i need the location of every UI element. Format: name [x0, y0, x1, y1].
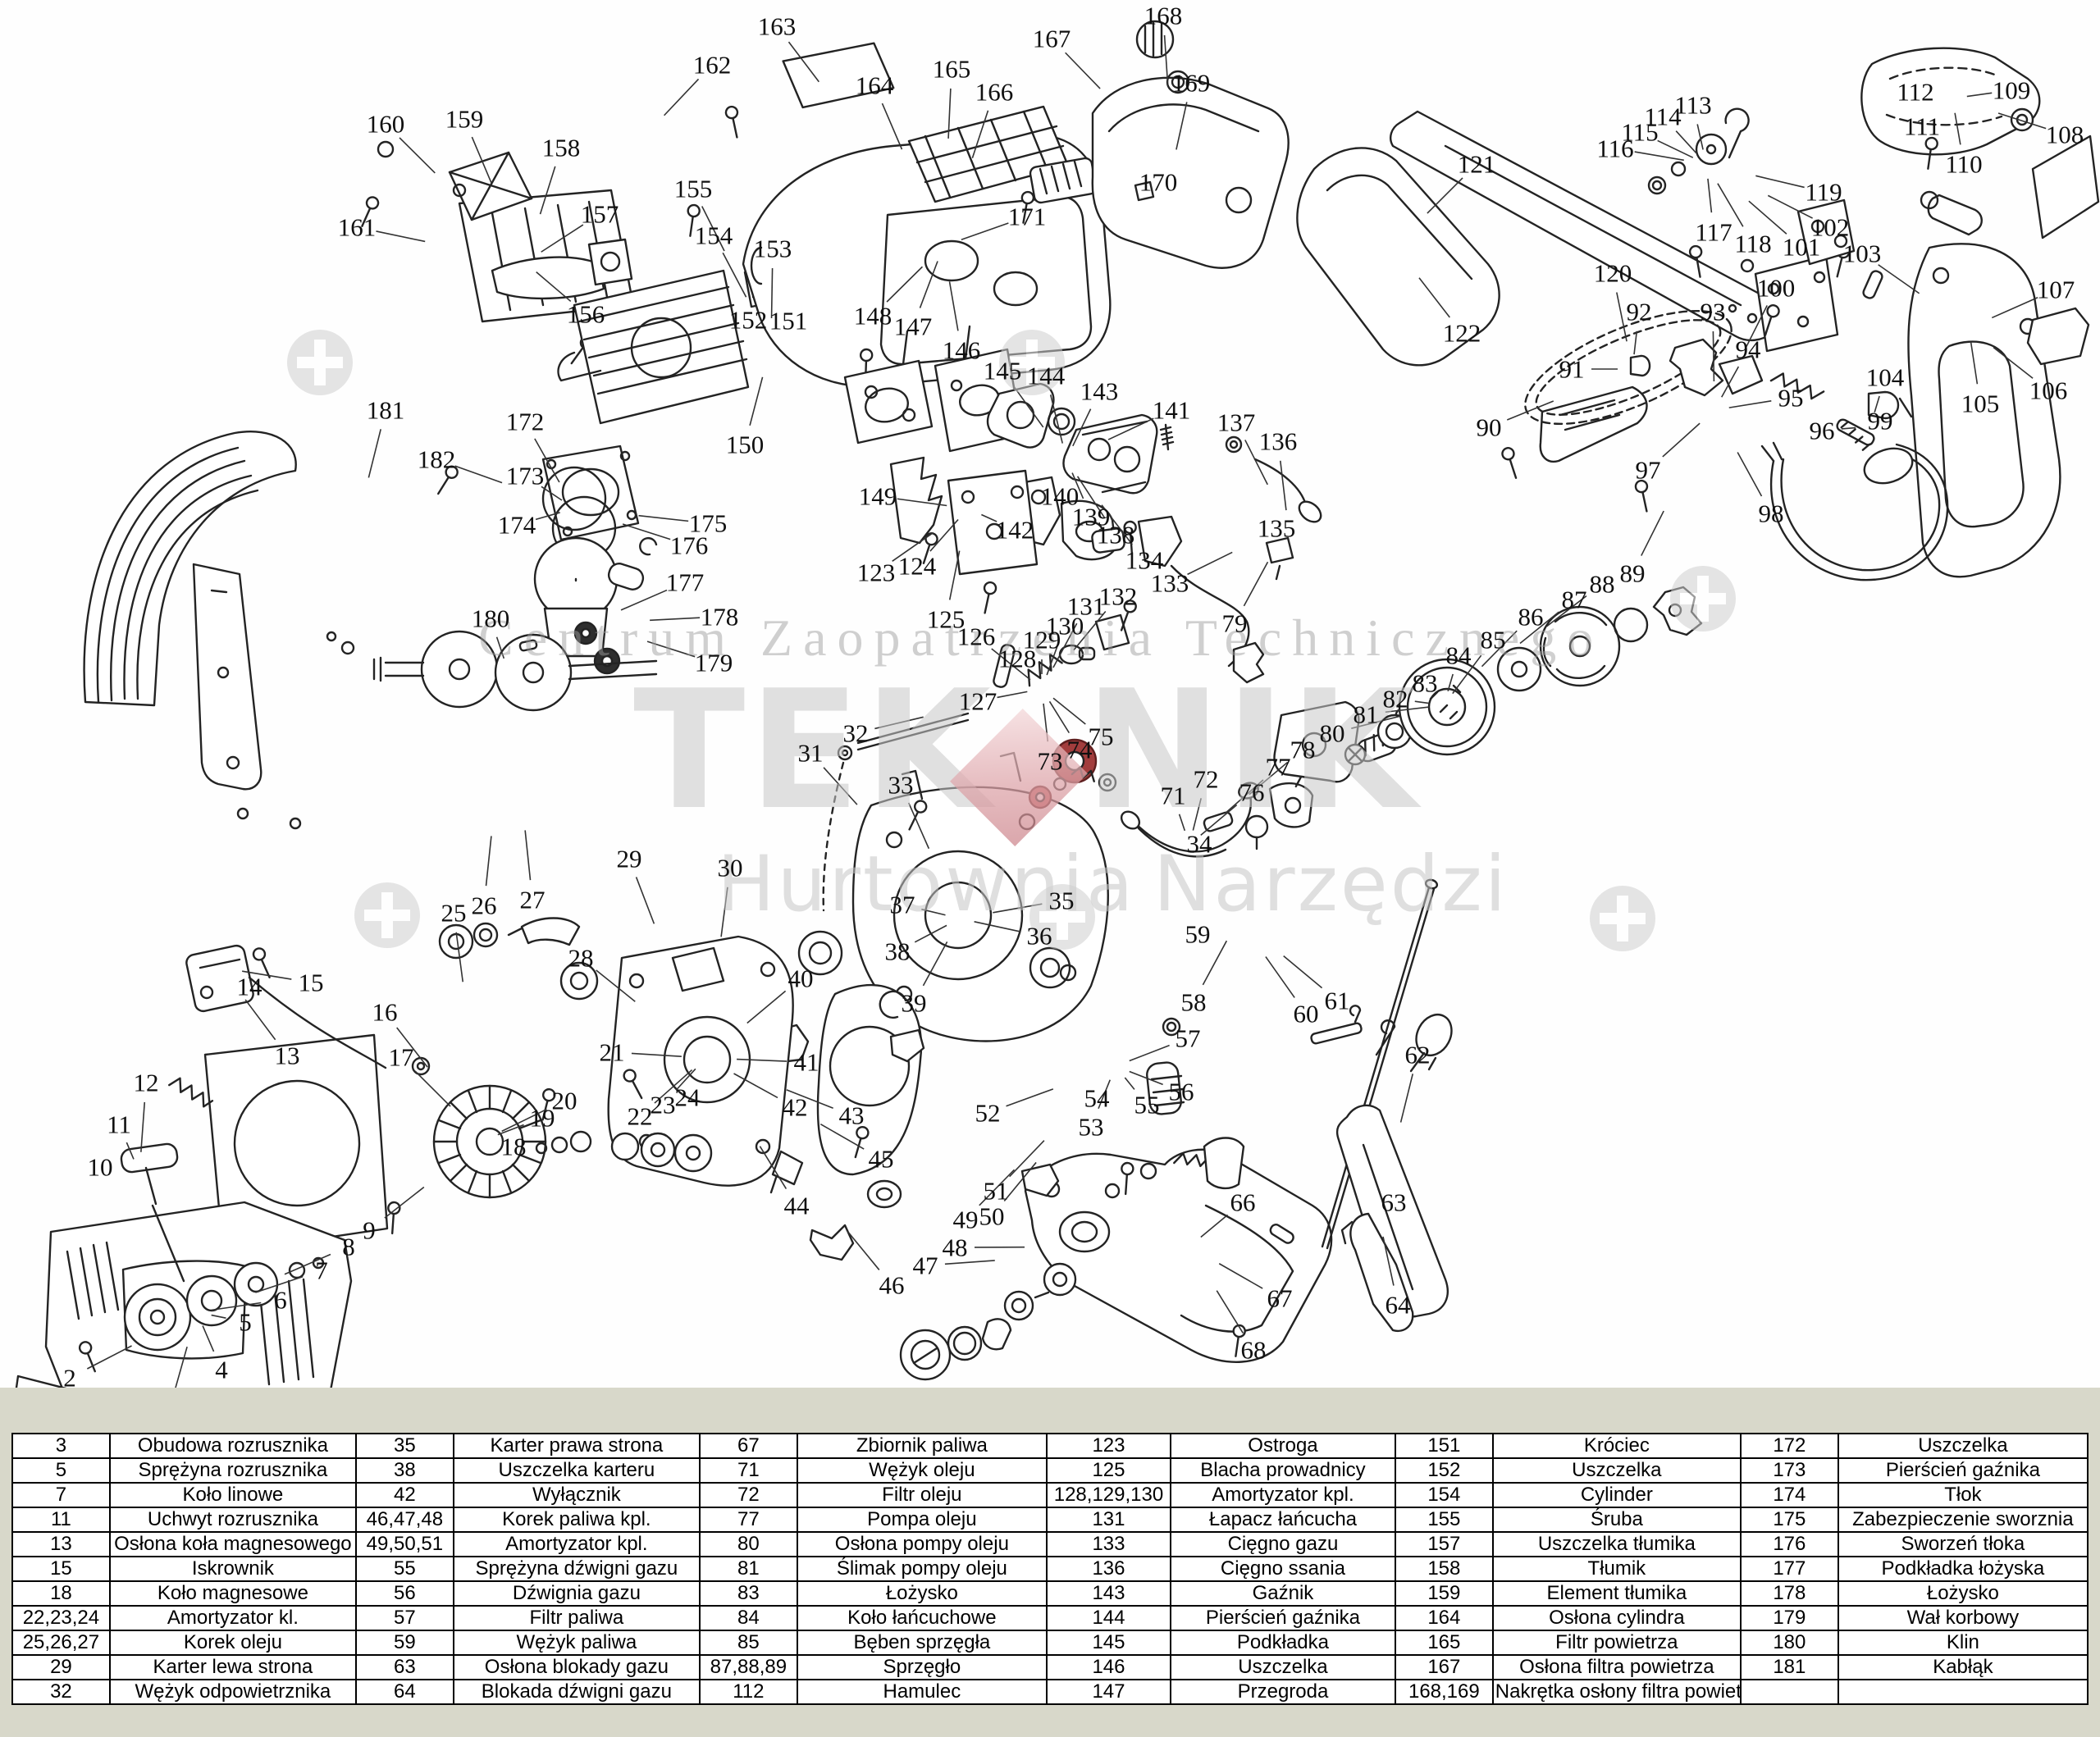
part-label-17: 17 [389, 1045, 414, 1070]
part-name-cell: Obudowa rozrusznika [110, 1434, 356, 1458]
part-label-100: 100 [1757, 276, 1796, 301]
part-label-34: 34 [1187, 832, 1212, 857]
part-label-107: 107 [2037, 277, 2075, 303]
part-label-80: 80 [1320, 721, 1345, 746]
part-number-cell: 25,26,27 [12, 1630, 110, 1655]
part-label-15: 15 [299, 970, 324, 996]
part-label-126: 126 [957, 624, 996, 650]
part-name-cell: Filtr paliwa [454, 1606, 700, 1630]
part-label-157: 157 [581, 202, 619, 227]
part-label-120: 120 [1594, 261, 1632, 286]
part-label-21: 21 [600, 1040, 625, 1065]
part-label-8: 8 [342, 1234, 355, 1260]
part-name-cell: Filtr oleju [797, 1483, 1047, 1507]
part-label-143: 143 [1080, 379, 1119, 404]
part-label-26: 26 [472, 893, 497, 919]
part-number-cell: 83 [700, 1581, 797, 1606]
part-label-169: 169 [1172, 71, 1211, 96]
part-number-cell: 55 [356, 1557, 454, 1581]
part-number-cell: 59 [356, 1630, 454, 1655]
part-number-cell: 133 [1047, 1532, 1171, 1557]
part-number-cell: 77 [700, 1507, 797, 1532]
part-label-48: 48 [943, 1235, 968, 1261]
part-number-cell: 64 [356, 1680, 454, 1704]
part-name-cell: Pierścień gaźnika [1171, 1606, 1395, 1630]
part-label-102: 102 [1811, 215, 1850, 240]
part-label-94: 94 [1736, 337, 1761, 362]
part-label-37: 37 [890, 892, 915, 918]
part-label-147: 147 [894, 314, 933, 340]
part-label-181: 181 [367, 398, 405, 423]
part-label-85: 85 [1481, 627, 1506, 653]
registration-marks-layer [0, 0, 2100, 1388]
part-name-cell: Gaźnik [1171, 1581, 1395, 1606]
page: { "page": { "background_color": "#d8d8ca… [0, 0, 2100, 1737]
part-label-137: 137 [1217, 410, 1256, 435]
part-label-153: 153 [754, 236, 792, 262]
part-number-cell: 157 [1395, 1532, 1493, 1557]
part-name-cell: Karter lewa strona [110, 1655, 356, 1680]
part-label-5: 5 [239, 1310, 252, 1335]
part-number-cell: 123 [1047, 1434, 1171, 1458]
part-label-2: 2 [63, 1365, 76, 1388]
part-name-cell: Ślimak pompy oleju [797, 1557, 1047, 1581]
part-label-172: 172 [506, 409, 545, 435]
part-number-cell: 144 [1047, 1606, 1171, 1630]
part-name-cell: Tłok [1838, 1483, 2088, 1507]
part-label-16: 16 [372, 1000, 398, 1025]
part-label-29: 29 [617, 846, 642, 872]
part-number-cell: 145 [1047, 1630, 1171, 1655]
part-label-41: 41 [794, 1050, 819, 1075]
part-name-cell [1838, 1680, 2088, 1704]
part-label-127: 127 [959, 689, 997, 714]
part-number-cell: 18 [12, 1581, 110, 1606]
part-label-150: 150 [726, 432, 765, 458]
part-label-4: 4 [215, 1357, 228, 1383]
part-label-27: 27 [520, 887, 546, 913]
registration-mark-icon [1670, 566, 1736, 631]
table-row: 15Iskrownik55Sprężyna dźwigni gazu81Ślim… [12, 1557, 2088, 1581]
part-name-cell: Cięgno ssania [1171, 1557, 1395, 1581]
part-label-117: 117 [1695, 220, 1732, 245]
table-row: 18Koło magnesowe56Dźwignia gazu83Łożysko… [12, 1581, 2088, 1606]
part-number-cell: 84 [700, 1606, 797, 1630]
part-label-61: 61 [1325, 988, 1350, 1014]
part-label-43: 43 [839, 1103, 865, 1128]
part-number-cell: 57 [356, 1606, 454, 1630]
part-label-178: 178 [701, 604, 739, 630]
part-name-cell: Element tłumika [1493, 1581, 1741, 1606]
part-name-cell: Podkładka łożyska [1838, 1557, 2088, 1581]
part-name-cell: Łapacz łańcucha [1171, 1507, 1395, 1532]
part-number-cell: 112 [700, 1680, 797, 1704]
part-label-166: 166 [975, 80, 1014, 105]
part-label-38: 38 [885, 939, 911, 964]
part-label-13: 13 [275, 1043, 300, 1069]
part-label-35: 35 [1049, 888, 1075, 914]
part-name-cell: Amortyzator kpl. [1171, 1483, 1395, 1507]
part-label-86: 86 [1518, 604, 1544, 630]
part-name-cell: Zbiornik paliwa [797, 1434, 1047, 1458]
part-number-cell: 13 [12, 1532, 110, 1557]
part-label-46: 46 [879, 1273, 905, 1298]
part-name-cell: Bęben sprzęgła [797, 1630, 1047, 1655]
part-name-cell: Blokada dźwigni gazu [454, 1680, 700, 1704]
part-label-30: 30 [718, 855, 743, 881]
part-name-cell: Wężyk oleju [797, 1458, 1047, 1483]
part-name-cell: Uszczelka [1838, 1434, 2088, 1458]
part-label-52: 52 [975, 1101, 1001, 1126]
part-label-18: 18 [501, 1134, 527, 1160]
part-label-164: 164 [856, 73, 894, 98]
table-row: 7Koło linowe42Wyłącznik72Filtr oleju128,… [12, 1483, 2088, 1507]
part-label-39: 39 [902, 991, 927, 1016]
part-label-163: 163 [758, 14, 797, 39]
part-label-92: 92 [1627, 299, 1652, 325]
part-name-cell: Klin [1838, 1630, 2088, 1655]
part-number-cell: 155 [1395, 1507, 1493, 1532]
part-label-75: 75 [1089, 724, 1114, 750]
part-label-123: 123 [857, 560, 896, 586]
part-label-33: 33 [888, 773, 914, 798]
part-number-cell: 179 [1741, 1606, 1838, 1630]
part-name-cell: Korek paliwa kpl. [454, 1507, 700, 1532]
part-label-118: 118 [1734, 231, 1771, 257]
part-number-cell: 125 [1047, 1458, 1171, 1483]
part-name-cell: Osłona cylindra [1493, 1606, 1741, 1630]
part-name-cell: Korek oleju [110, 1630, 356, 1655]
part-label-148: 148 [854, 303, 892, 329]
part-label-58: 58 [1181, 990, 1207, 1015]
part-number-cell: 35 [356, 1434, 454, 1458]
part-label-84: 84 [1446, 643, 1472, 668]
part-number-cell: 81 [700, 1557, 797, 1581]
part-number-cell: 46,47,48 [356, 1507, 454, 1532]
part-label-23: 23 [651, 1092, 676, 1118]
part-number-cell: 181 [1741, 1655, 1838, 1680]
part-number-cell: 158 [1395, 1557, 1493, 1581]
part-label-168: 168 [1144, 3, 1183, 29]
part-label-144: 144 [1027, 363, 1066, 389]
part-label-64: 64 [1386, 1292, 1411, 1318]
part-number-cell: 143 [1047, 1581, 1171, 1606]
part-label-53: 53 [1079, 1115, 1104, 1140]
part-label-78: 78 [1290, 737, 1316, 763]
part-number-cell: 146 [1047, 1655, 1171, 1680]
part-label-44: 44 [784, 1193, 810, 1219]
part-label-22: 22 [628, 1104, 653, 1129]
part-number-cell: 147 [1047, 1680, 1171, 1704]
part-label-179: 179 [695, 650, 733, 676]
part-label-103: 103 [1843, 241, 1882, 267]
part-name-cell: Osłona pompy oleju [797, 1532, 1047, 1557]
part-name-cell: Amortyzator kpl. [454, 1532, 700, 1557]
part-name-cell: Filtr powietrza [1493, 1630, 1741, 1655]
part-label-87: 87 [1562, 587, 1587, 613]
part-name-cell: Karter prawa strona [454, 1434, 700, 1458]
part-label-12: 12 [134, 1070, 159, 1096]
part-label-63: 63 [1381, 1190, 1407, 1215]
part-name-cell: Łożysko [797, 1581, 1047, 1606]
part-label-90: 90 [1477, 415, 1502, 440]
part-number-cell: 80 [700, 1532, 797, 1557]
part-name-cell: Uszczelka tłumika [1493, 1532, 1741, 1557]
part-label-50: 50 [979, 1204, 1005, 1229]
part-label-45: 45 [869, 1147, 894, 1172]
part-name-cell: Cięgno gazu [1171, 1532, 1395, 1557]
part-number-cell: 180 [1741, 1630, 1838, 1655]
part-label-59: 59 [1185, 922, 1211, 947]
registration-mark-icon [354, 882, 420, 948]
part-label-68: 68 [1241, 1338, 1267, 1363]
part-number-cell: 63 [356, 1655, 454, 1680]
part-label-76: 76 [1239, 780, 1265, 805]
part-name-cell: Koło łańcuchowe [797, 1606, 1047, 1630]
part-label-56: 56 [1169, 1079, 1194, 1105]
part-number-cell: 85 [700, 1630, 797, 1655]
part-label-97: 97 [1636, 458, 1661, 483]
part-name-cell: Kabłąk [1838, 1655, 2088, 1680]
part-name-cell: Uszczelka [1171, 1655, 1395, 1680]
part-label-40: 40 [788, 966, 814, 992]
part-label-182: 182 [418, 447, 456, 472]
part-number-cell: 32 [12, 1680, 110, 1704]
part-number-cell: 72 [700, 1483, 797, 1507]
part-name-cell: Cylinder [1493, 1483, 1741, 1507]
part-number-cell: 42 [356, 1483, 454, 1507]
registration-mark-icon [287, 330, 353, 395]
part-number-cell: 164 [1395, 1606, 1493, 1630]
part-label-152: 152 [729, 308, 768, 333]
part-label-124: 124 [898, 554, 937, 579]
parts-list-table: 3Obudowa rozrusznika35Karter prawa stron… [11, 1433, 2089, 1705]
part-label-173: 173 [506, 463, 545, 489]
part-number-cell: 165 [1395, 1630, 1493, 1655]
part-label-167: 167 [1033, 26, 1071, 52]
part-number-cell: 159 [1395, 1581, 1493, 1606]
part-name-cell: Wężyk paliwa [454, 1630, 700, 1655]
part-label-132: 132 [1099, 584, 1138, 609]
part-label-110: 110 [1945, 152, 1982, 177]
part-label-24: 24 [675, 1085, 701, 1110]
part-label-170: 170 [1139, 170, 1178, 195]
part-name-cell: Łożysko [1838, 1581, 2088, 1606]
part-label-14: 14 [237, 974, 262, 1000]
part-label-71: 71 [1161, 783, 1186, 809]
part-label-174: 174 [498, 513, 536, 538]
part-label-81: 81 [1354, 702, 1379, 727]
table-row: 5Sprężyna rozrusznika38Uszczelka karteru… [12, 1458, 2088, 1483]
exploded-diagram-canvas: Centrum Zaopatrzenia Technicznego TEK NI… [0, 0, 2100, 1388]
part-number-cell: 152 [1395, 1458, 1493, 1483]
part-name-cell: Blacha prowadnicy [1171, 1458, 1395, 1483]
part-number-cell: 176 [1741, 1532, 1838, 1557]
part-number-cell: 3 [12, 1434, 110, 1458]
part-name-cell: Dźwignia gazu [454, 1581, 700, 1606]
part-number-cell: 56 [356, 1581, 454, 1606]
part-label-47: 47 [913, 1253, 938, 1279]
part-label-60: 60 [1294, 1001, 1319, 1027]
table-row: 29Karter lewa strona63Osłona blokady gaz… [12, 1655, 2088, 1680]
part-label-156: 156 [567, 302, 605, 327]
part-number-cell: 71 [700, 1458, 797, 1483]
part-name-cell: Sworzeń tłoka [1838, 1532, 2088, 1557]
part-label-88: 88 [1590, 572, 1615, 597]
part-name-cell: Sprężyna rozrusznika [110, 1458, 356, 1483]
part-name-cell: Tłumik [1493, 1557, 1741, 1581]
table-row: 11Uchwyt rozrusznika46,47,48Korek paliwa… [12, 1507, 2088, 1532]
part-number-cell: 7 [12, 1483, 110, 1507]
part-label-119: 119 [1805, 180, 1842, 205]
part-label-89: 89 [1620, 561, 1646, 586]
part-label-161: 161 [338, 215, 377, 240]
part-label-145: 145 [984, 358, 1022, 384]
part-label-6: 6 [274, 1288, 287, 1313]
part-label-165: 165 [933, 57, 971, 82]
part-label-11: 11 [107, 1112, 131, 1137]
part-name-cell: Sprężyna dźwigni gazu [454, 1557, 700, 1581]
part-label-111: 111 [1904, 114, 1940, 139]
part-number-cell: 175 [1741, 1507, 1838, 1532]
part-label-95: 95 [1778, 385, 1804, 411]
part-name-cell: Uszczelka [1493, 1458, 1741, 1483]
part-label-7: 7 [315, 1258, 328, 1283]
part-label-104: 104 [1866, 365, 1905, 390]
part-label-79: 79 [1222, 611, 1248, 636]
part-label-9: 9 [363, 1218, 376, 1243]
part-label-54: 54 [1084, 1086, 1110, 1111]
part-number-cell: 178 [1741, 1581, 1838, 1606]
part-number-cell: 151 [1395, 1434, 1493, 1458]
part-label-20: 20 [552, 1088, 577, 1114]
part-label-31: 31 [798, 741, 824, 766]
part-number-cell: 87,88,89 [700, 1655, 797, 1680]
table-row: 3Obudowa rozrusznika35Karter prawa stron… [12, 1434, 2088, 1458]
part-label-135: 135 [1258, 516, 1296, 541]
part-name-cell: Sprzęgło [797, 1655, 1047, 1680]
part-number-cell: 38 [356, 1458, 454, 1483]
part-label-171: 171 [1008, 204, 1047, 230]
part-name-cell: Ostroga [1171, 1434, 1395, 1458]
part-label-42: 42 [783, 1095, 808, 1120]
part-label-180: 180 [472, 606, 510, 631]
part-label-49: 49 [953, 1207, 979, 1233]
part-number-cell: 154 [1395, 1483, 1493, 1507]
parts-list-body: 3Obudowa rozrusznika35Karter prawa stron… [12, 1434, 2088, 1704]
part-name-cell: Podkładka [1171, 1630, 1395, 1655]
part-label-72: 72 [1194, 767, 1219, 792]
part-name-cell: Osłona blokady gazu [454, 1655, 700, 1680]
part-label-116: 116 [1596, 136, 1633, 162]
part-label-93: 93 [1701, 299, 1726, 325]
part-label-66: 66 [1230, 1190, 1256, 1215]
part-label-51: 51 [984, 1179, 1009, 1204]
part-label-28: 28 [568, 946, 594, 971]
part-label-134: 134 [1125, 548, 1164, 573]
part-label-141: 141 [1153, 398, 1191, 423]
part-label-77: 77 [1266, 755, 1291, 780]
part-number-cell: 168,169 [1395, 1680, 1493, 1704]
registration-mark-icon [1590, 886, 1655, 951]
part-name-cell: Hamulec [797, 1680, 1047, 1704]
part-number-cell: 167 [1395, 1655, 1493, 1680]
table-row: 25,26,27Korek oleju59Wężyk paliwa85Bęben… [12, 1630, 2088, 1655]
part-number-cell: 29 [12, 1655, 110, 1680]
part-label-73: 73 [1038, 749, 1063, 774]
part-label-57: 57 [1176, 1026, 1201, 1051]
part-number-cell: 67 [700, 1434, 797, 1458]
part-label-25: 25 [441, 900, 467, 926]
part-label-105: 105 [1961, 391, 2000, 417]
part-number-cell: 136 [1047, 1557, 1171, 1581]
part-name-cell: Wyłącznik [454, 1483, 700, 1507]
table-row: 13Osłona koła magnesowego49,50,51Amortyz… [12, 1532, 2088, 1557]
part-label-98: 98 [1759, 501, 1784, 527]
part-label-121: 121 [1458, 152, 1496, 177]
part-number-cell: 177 [1741, 1557, 1838, 1581]
part-label-160: 160 [367, 112, 405, 137]
part-name-cell: Koło magnesowe [110, 1581, 356, 1606]
part-label-91: 91 [1559, 357, 1585, 382]
part-label-159: 159 [445, 107, 484, 132]
part-label-140: 140 [1041, 484, 1080, 509]
part-label-155: 155 [674, 176, 713, 202]
part-name-cell: Uchwyt rozrusznika [110, 1507, 356, 1532]
part-number-cell: 131 [1047, 1507, 1171, 1532]
part-name-cell: Amortyzator kl. [110, 1606, 356, 1630]
part-label-82: 82 [1383, 686, 1408, 712]
part-number-cell: 172 [1741, 1434, 1838, 1458]
part-label-36: 36 [1027, 923, 1052, 949]
part-name-cell: Wał korbowy [1838, 1606, 2088, 1630]
part-number-cell: 128,129,130 [1047, 1483, 1171, 1507]
part-number-cell: 15 [12, 1557, 110, 1581]
part-name-cell: Uszczelka karteru [454, 1458, 700, 1483]
part-label-83: 83 [1413, 671, 1438, 696]
part-label-176: 176 [670, 533, 709, 558]
part-label-151: 151 [769, 308, 808, 334]
part-name-cell: Osłona koła magnesowego [110, 1532, 356, 1557]
part-label-96: 96 [1810, 418, 1835, 444]
table-row: 32Wężyk odpowietrznika64Blokada dźwigni … [12, 1680, 2088, 1704]
part-name-cell: Śruba [1493, 1507, 1741, 1532]
part-label-146: 146 [943, 338, 981, 363]
part-number-cell: 22,23,24 [12, 1606, 110, 1630]
part-label-10: 10 [88, 1155, 113, 1180]
part-label-112: 112 [1897, 80, 1933, 105]
part-name-cell: Zabezpieczenie sworznia [1838, 1507, 2088, 1532]
part-label-177: 177 [666, 570, 705, 595]
part-name-cell: Koło linowe [110, 1483, 356, 1507]
part-number-cell: 174 [1741, 1483, 1838, 1507]
part-label-55: 55 [1134, 1092, 1160, 1118]
part-number-cell: 173 [1741, 1458, 1838, 1483]
part-label-149: 149 [859, 484, 897, 509]
part-number-cell [1741, 1680, 1838, 1704]
part-number-cell: 11 [12, 1507, 110, 1532]
part-label-122: 122 [1443, 321, 1481, 346]
part-name-cell: Przegroda [1171, 1680, 1395, 1704]
part-label-32: 32 [843, 721, 869, 746]
part-number-cell: 5 [12, 1458, 110, 1483]
part-label-154: 154 [695, 223, 733, 248]
part-label-108: 108 [2046, 122, 2084, 148]
part-number-cell: 49,50,51 [356, 1532, 454, 1557]
part-name-cell: Pompa oleju [797, 1507, 1047, 1532]
part-label-136: 136 [1259, 429, 1298, 454]
part-name-cell: Iskrownik [110, 1557, 356, 1581]
